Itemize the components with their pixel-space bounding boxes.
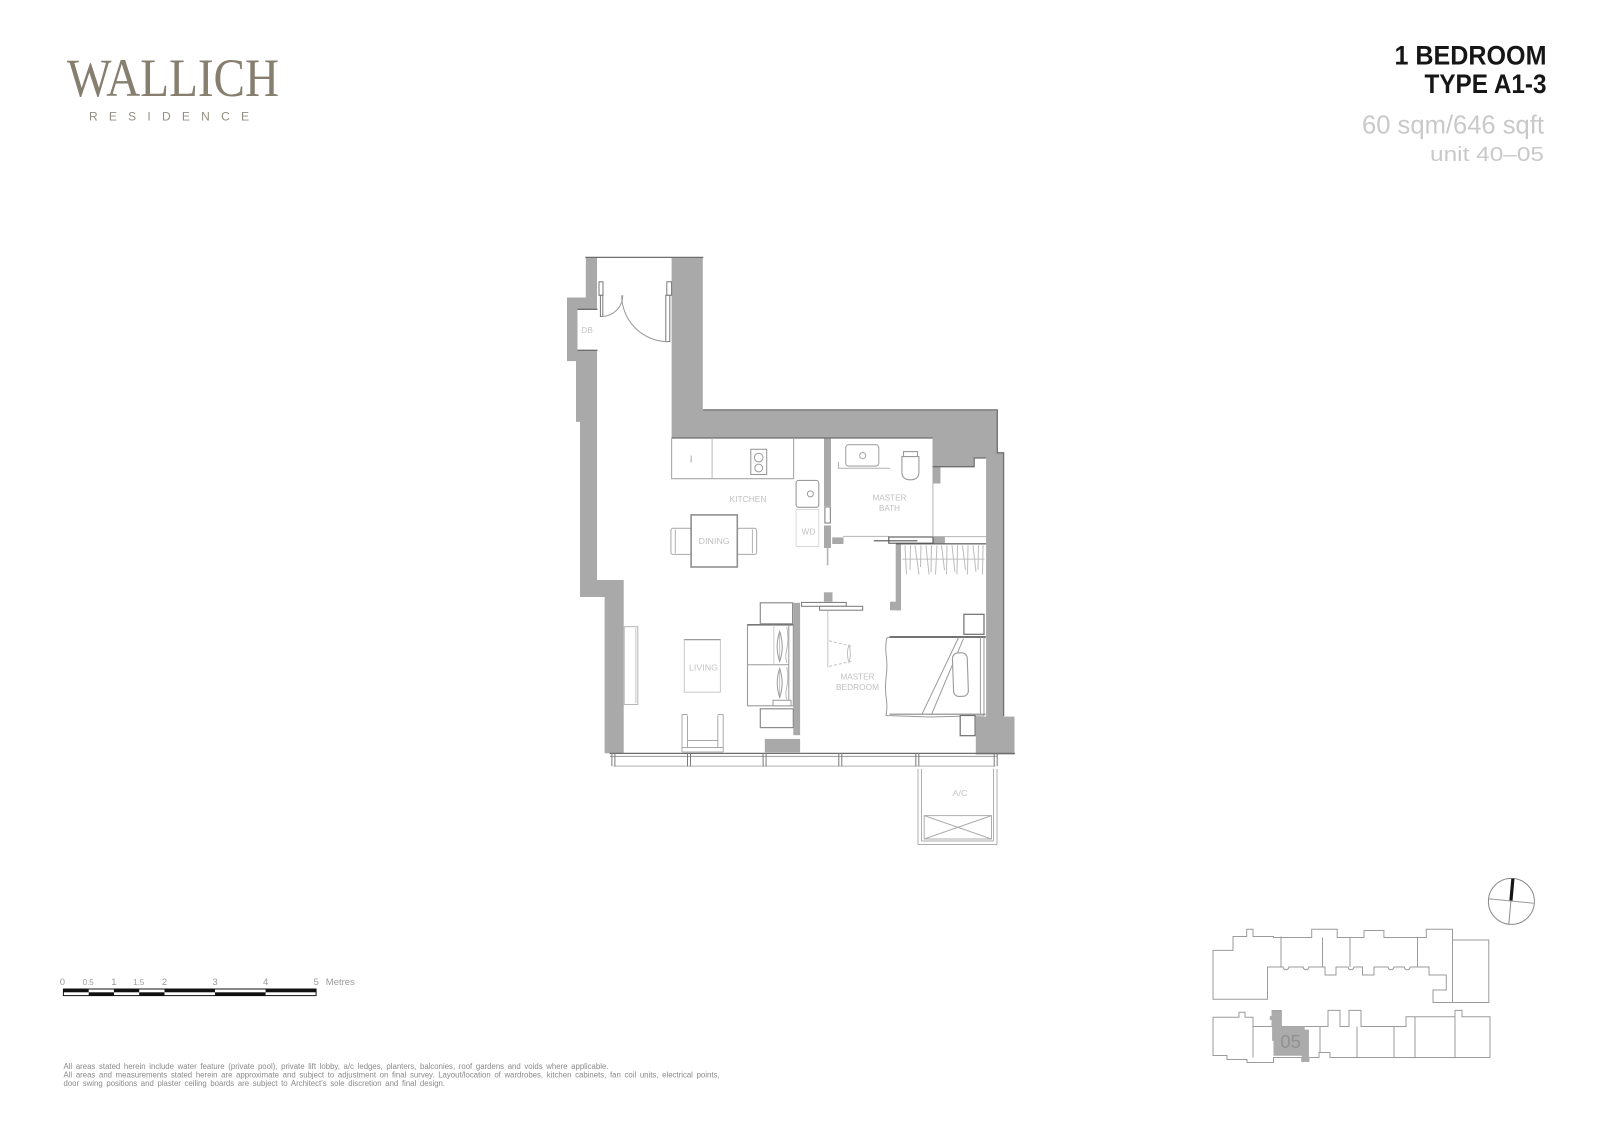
svg-text:WALLICH: WALLICH bbox=[67, 48, 279, 108]
svg-text:RESIDENCE: RESIDENCE bbox=[89, 109, 249, 123]
svg-text:4: 4 bbox=[263, 977, 268, 988]
svg-text:1.5: 1.5 bbox=[133, 978, 145, 987]
svg-text:3: 3 bbox=[212, 977, 217, 988]
svg-text:05: 05 bbox=[1280, 1031, 1301, 1052]
svg-text:MASTER: MASTER bbox=[841, 672, 875, 682]
svg-text:unit 40–05: unit 40–05 bbox=[1430, 144, 1544, 166]
svg-text:MASTER: MASTER bbox=[873, 493, 907, 503]
svg-text:1: 1 bbox=[111, 977, 116, 988]
svg-text:door swing positions and plast: door swing positions and plaster ceiling… bbox=[64, 1079, 446, 1088]
svg-text:0: 0 bbox=[60, 977, 65, 988]
svg-text:KITCHEN: KITCHEN bbox=[730, 494, 767, 504]
svg-text:BEDROOM: BEDROOM bbox=[836, 682, 879, 692]
svg-text:1 BEDROOM: 1 BEDROOM bbox=[1395, 40, 1547, 70]
svg-text:DB: DB bbox=[581, 326, 593, 335]
svg-text:60 sqm/646 sqft: 60 sqm/646 sqft bbox=[1362, 110, 1545, 140]
svg-text:0.5: 0.5 bbox=[83, 978, 95, 987]
svg-text:DINING: DINING bbox=[699, 536, 730, 546]
svg-text:2: 2 bbox=[162, 977, 167, 988]
svg-text:LIVING: LIVING bbox=[689, 663, 718, 673]
svg-text:Metres: Metres bbox=[326, 977, 355, 988]
svg-text:TYPE A1-3: TYPE A1-3 bbox=[1425, 69, 1547, 99]
svg-text:WD: WD bbox=[802, 528, 816, 537]
svg-text:A/C: A/C bbox=[953, 788, 968, 798]
svg-text:5: 5 bbox=[313, 977, 318, 988]
svg-text:BATH: BATH bbox=[879, 503, 900, 513]
